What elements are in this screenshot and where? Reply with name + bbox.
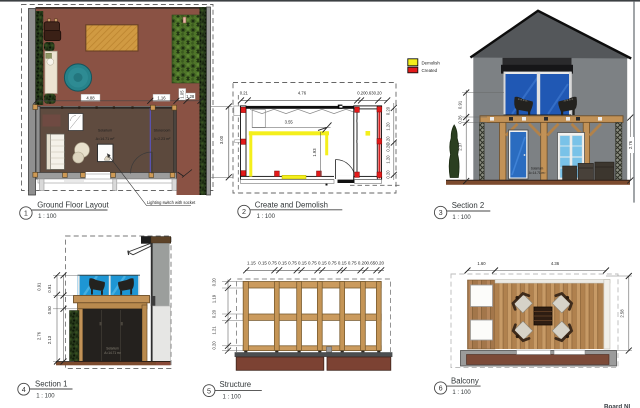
svg-text:0.20: 0.20 <box>212 277 217 286</box>
svg-text:Solarium: Solarium <box>106 347 119 351</box>
svg-text:3: 3 <box>439 208 443 217</box>
svg-text:2: 2 <box>242 207 246 216</box>
svg-text:4: 4 <box>22 385 26 394</box>
svg-text:0.20: 0.20 <box>212 341 217 350</box>
svg-text:Create and Demolish: Create and Demolish <box>255 201 328 210</box>
svg-text:0.20: 0.20 <box>385 106 390 115</box>
svg-text:A=14.71 m²: A=14.71 m² <box>96 137 115 141</box>
svg-text:0.200.630.20: 0.200.630.20 <box>357 90 382 95</box>
svg-text:0.91: 0.91 <box>37 282 42 291</box>
svg-text:Section 1: Section 1 <box>35 379 68 388</box>
svg-text:Board Nl: Board Nl <box>604 403 630 408</box>
svg-text:1.19: 1.19 <box>212 294 217 303</box>
svg-text:1.28: 1.28 <box>186 94 195 99</box>
svg-text:Section 2: Section 2 <box>452 201 485 210</box>
svg-text:1 : 100: 1 : 100 <box>223 394 242 400</box>
svg-text:1.05: 1.05 <box>180 90 185 99</box>
svg-text:A=14.71 m²: A=14.71 m² <box>104 351 121 355</box>
svg-text:Created: Created <box>422 68 438 73</box>
svg-text:0.20: 0.20 <box>385 143 390 152</box>
svg-text:4.36: 4.36 <box>551 261 560 266</box>
svg-text:2.76: 2.76 <box>628 140 633 149</box>
svg-text:1.21: 1.21 <box>212 326 217 335</box>
svg-text:Structure: Structure <box>220 380 252 389</box>
svg-text:1.15 0.15 0.75 0.15 0.75 0.15: 1.15 0.15 0.75 0.15 0.75 0.15 0.75 0.15 … <box>247 260 385 265</box>
svg-text:A=14.71 m²: A=14.71 m² <box>529 171 546 175</box>
svg-text:1 : 100: 1 : 100 <box>452 215 471 221</box>
svg-text:2.13: 2.13 <box>47 335 52 344</box>
svg-text:2.37: 2.37 <box>458 142 463 151</box>
svg-text:1.16: 1.16 <box>157 96 166 101</box>
svg-text:6: 6 <box>439 384 443 393</box>
svg-text:1: 1 <box>24 209 28 218</box>
svg-text:0.20: 0.20 <box>385 136 390 145</box>
svg-text:1.20: 1.20 <box>385 122 390 131</box>
svg-text:1 : 100: 1 : 100 <box>452 390 471 396</box>
svg-text:1.20: 1.20 <box>385 155 390 164</box>
svg-text:Balcony: Balcony <box>451 376 479 385</box>
svg-text:5: 5 <box>207 386 211 395</box>
svg-text:1.93: 1.93 <box>312 148 317 157</box>
svg-text:4.76: 4.76 <box>298 90 307 95</box>
svg-text:Solarium: Solarium <box>98 129 112 133</box>
svg-text:0.26: 0.26 <box>458 115 463 124</box>
svg-text:1 : 100: 1 : 100 <box>36 393 55 399</box>
svg-text:1 : 100: 1 : 100 <box>257 214 276 220</box>
svg-text:2.76: 2.76 <box>37 331 42 340</box>
svg-text:4.88: 4.88 <box>86 96 95 101</box>
svg-text:Demolish: Demolish <box>422 61 441 66</box>
svg-text:0.50: 0.50 <box>47 305 52 314</box>
svg-text:3.00: 3.00 <box>219 135 224 144</box>
svg-text:Solarium: Solarium <box>531 167 544 171</box>
svg-text:Ground Floor Layout: Ground Floor Layout <box>37 201 109 210</box>
svg-text:Storeroom: Storeroom <box>154 129 171 133</box>
svg-text:0.20: 0.20 <box>385 170 390 179</box>
svg-text:Lighting switch with socket: Lighting switch with socket <box>147 200 196 205</box>
svg-text:A=2.23 m²: A=2.23 m² <box>154 137 171 141</box>
svg-text:0.21: 0.21 <box>240 90 249 95</box>
svg-text:1 : 100: 1 : 100 <box>38 214 57 220</box>
svg-text:0.91: 0.91 <box>47 284 52 293</box>
svg-text:1.60: 1.60 <box>477 261 486 266</box>
svg-text:3.55: 3.55 <box>285 119 294 124</box>
svg-text:2.58: 2.58 <box>619 309 624 318</box>
svg-text:0.20: 0.20 <box>212 309 217 318</box>
svg-text:0.91: 0.91 <box>458 100 463 109</box>
